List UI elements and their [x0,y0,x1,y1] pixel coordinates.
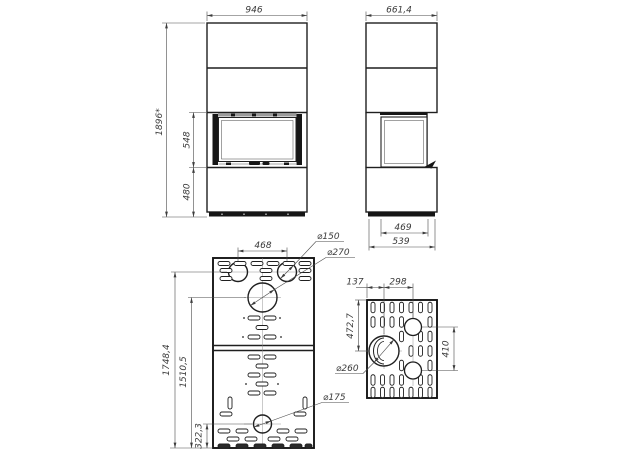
vent-slot [272,444,284,448]
vent-slot [371,302,375,313]
plinth-screw [243,214,244,215]
back-panel-body [213,258,314,448]
drawing-page: 946 1896* 548 480 661,4 469 539 468 ⌀150 [0,0,624,460]
vent-slot [248,391,260,395]
vent-slot [277,429,289,433]
vent-slot [260,277,272,281]
vent-slot [299,277,311,281]
door-handle [263,162,270,165]
vent-slot [264,355,276,359]
dim-front-height: 1896* [155,108,165,136]
dim-height-flue175: 322,3 [195,423,205,449]
side-glass [381,117,427,167]
firebox-frame-right [297,114,303,165]
vent-slots-group [218,262,312,449]
dim-glass-depth: 469 [394,223,411,233]
vent-slot [400,360,404,371]
vent-slot [236,444,248,448]
vent-slot [256,382,268,386]
vent-slot [371,387,375,398]
dim-height-center: 472,7 [346,313,356,339]
side-hole-bottom [405,362,422,379]
door-handle [249,162,260,166]
vent-slot [400,387,404,398]
vent-slot [248,316,260,320]
vent-slot [381,387,385,398]
vent-slot [400,317,404,328]
door-hinge [226,163,231,166]
vent-slot [400,302,404,313]
vent-slot [305,444,312,448]
dim-side-depth: 661,4 [386,6,412,16]
vent-slot [218,429,230,433]
side-top-bar [380,113,427,116]
vent-slot [220,277,232,281]
vent-slot [381,375,385,386]
vent-slot [299,262,311,266]
vent-slot [419,346,423,357]
dim-flue-d260: ⌀260 [336,364,359,374]
plinth-screw [221,214,222,215]
vent-slot [409,346,413,357]
dim-base-height: 480 [183,183,193,200]
vent-slot [234,262,246,266]
vent-slot [283,262,295,266]
vent-slot [268,437,280,441]
vent-slot [256,326,268,330]
vent-slot [428,302,432,313]
side-panel-view [366,300,437,398]
vent-slot [245,437,257,441]
vent-slot [256,364,268,368]
vent-slot [248,335,260,339]
plinth-screw [265,214,266,215]
vent-slot [371,317,375,328]
vent-slot [286,437,298,441]
vent-slot [248,355,260,359]
dim-flue-d150: ⌀150 [317,232,340,242]
vent-slot [390,375,394,386]
front-base-plinth [209,212,305,217]
rivet-dot [280,336,282,338]
vent-slot [409,302,413,313]
vent-slot [294,412,306,416]
vent-slot [371,375,375,386]
back-panel-view [213,258,314,448]
vent-slot [428,387,432,398]
plinth-screw [287,214,288,215]
rivet-dot [279,317,281,319]
vent-slot [428,346,432,357]
side-view [366,23,437,217]
vent-slot [428,331,432,342]
front-view [207,23,307,217]
side-base-plinth [368,212,435,217]
vent-slot [295,429,307,433]
vent-slot [428,375,432,386]
firebox-top-bar [218,114,297,117]
dim-flue-d175: ⌀175 [323,393,346,403]
vent-slot [218,444,230,448]
vent-slot [419,302,423,313]
firebox-glass [219,118,297,162]
rivet-dot [245,383,247,385]
door-hinge [284,163,289,166]
vent-slot [260,269,272,273]
dim-firebox-height: 548 [183,131,193,148]
vent-slot [428,360,432,371]
firebox-top-tick [252,114,256,117]
vent-slot [254,444,266,448]
firebox-top-tick [231,114,235,117]
vent-slot [227,437,239,441]
dim-flue-d270: ⌀270 [327,248,350,258]
firebox-top-tick [273,114,277,117]
dim-height-flue270: 1510,5 [179,356,189,388]
vent-slot [220,412,232,416]
vent-slot [390,387,394,398]
dim-front-width: 946 [245,6,262,16]
vent-slot [228,397,232,409]
vent-slot [218,262,230,266]
technical-drawing: 946 1896* 548 480 661,4 469 539 468 ⌀150 [0,0,624,460]
vent-slot [400,375,404,386]
vent-slot [248,373,260,377]
vent-slot [390,302,394,313]
vent-slot [390,317,394,328]
dim-flue-spacing: 468 [254,241,271,251]
vent-slot [264,373,276,377]
vent-slot [409,387,413,398]
firebox-frame-left [213,114,219,165]
dim-offset-front: 137 [346,278,363,288]
rivet-dot [242,336,244,338]
vent-slot [290,444,302,448]
vent-slot [264,335,276,339]
vent-slot [267,262,279,266]
vent-slot [428,317,432,328]
dim-base-depth: 539 [392,237,409,247]
vent-slot [400,331,404,342]
vent-slot [419,387,423,398]
dim-spacing-h: 298 [389,278,406,288]
vent-slot [264,391,276,395]
dim-spacing-v: 410 [442,340,452,357]
rivet-dot [277,383,279,385]
vent-slot [303,397,307,409]
vent-slot [264,316,276,320]
side-lower-body [366,168,437,213]
rivet-dot [243,317,245,319]
dim-height-flue150: 1748,4 [162,344,172,376]
vent-slot [236,429,248,433]
side-hole-top [405,319,422,336]
vent-slot [251,262,263,266]
